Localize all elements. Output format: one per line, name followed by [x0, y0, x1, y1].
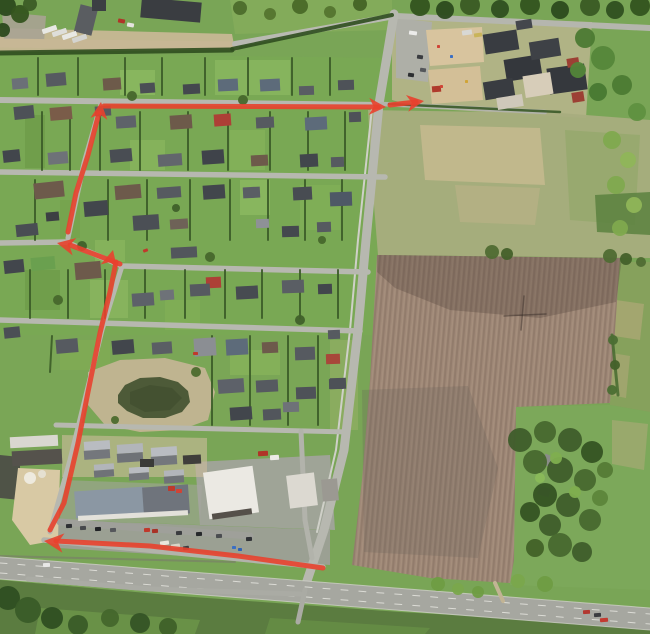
- building-roof: [151, 446, 178, 457]
- vehicle: [176, 489, 182, 493]
- vehicle: [216, 534, 222, 538]
- route-top-horizontal: [104, 106, 378, 107]
- building-roof: [183, 84, 201, 95]
- building-roof: [330, 378, 346, 390]
- tree-canopy: [606, 1, 624, 19]
- vehicle: [232, 546, 236, 549]
- building-roof: [170, 114, 193, 130]
- vehicle: [600, 618, 608, 623]
- building-roof: [251, 155, 269, 167]
- tree-canopy: [608, 335, 618, 345]
- tree-canopy: [533, 483, 557, 507]
- tree-canopy: [603, 131, 621, 149]
- vehicle: [583, 610, 590, 614]
- building-roof: [103, 77, 122, 90]
- building-roof: [84, 449, 111, 460]
- vehicle: [408, 73, 414, 78]
- tree-canopy: [550, 452, 562, 464]
- building-roof: [3, 326, 20, 339]
- vehicle: [196, 532, 202, 536]
- building-roof: [160, 290, 175, 301]
- tree-canopy: [318, 236, 326, 244]
- building-roof: [158, 153, 183, 167]
- tree-canopy: [537, 576, 553, 592]
- aerial-map: [0, 0, 650, 634]
- tree-canopy: [295, 315, 305, 325]
- tree-canopy: [53, 295, 63, 305]
- vehicle: [246, 537, 252, 541]
- farm-gravel-track: [0, 43, 235, 46]
- building-roof: [74, 261, 101, 280]
- building-roof: [3, 259, 24, 274]
- building-roof: [256, 219, 269, 228]
- vehicle: [152, 529, 158, 533]
- tree-canopy: [324, 6, 336, 18]
- tree-canopy: [172, 204, 180, 212]
- rough-field-tan-patch: [455, 185, 540, 225]
- building-roof: [286, 472, 318, 508]
- vehicle: [193, 352, 198, 355]
- tree-canopy: [491, 0, 509, 18]
- building-roof: [46, 211, 60, 221]
- vehicle: [95, 527, 101, 531]
- tree-canopy: [612, 75, 632, 95]
- tree-canopy: [431, 577, 445, 591]
- building-roof: [48, 151, 69, 165]
- building-roof: [282, 226, 299, 238]
- tree-canopy: [436, 1, 454, 19]
- building-roof: [218, 78, 239, 91]
- tree-canopy: [539, 514, 561, 536]
- building-roof: [151, 455, 178, 466]
- building-roof: [12, 449, 63, 467]
- tree-canopy: [575, 28, 595, 48]
- tree-canopy: [191, 367, 201, 377]
- building-roof: [318, 284, 332, 294]
- vehicle: [440, 85, 443, 88]
- vehicle: [258, 451, 268, 457]
- building-roof: [236, 285, 259, 299]
- tree-canopy: [233, 1, 247, 15]
- building-roof: [349, 112, 361, 122]
- vehicle: [420, 68, 426, 73]
- tree-canopy: [636, 257, 646, 267]
- building-roof: [522, 72, 553, 98]
- building-roof: [330, 192, 352, 207]
- east-strip-tan: [614, 300, 644, 340]
- building-roof: [243, 187, 261, 199]
- building-roof: [321, 478, 339, 501]
- tree-canopy: [24, 472, 36, 484]
- tree-canopy: [592, 490, 608, 506]
- tree-canopy: [205, 252, 215, 262]
- building-roof: [202, 149, 225, 165]
- building-roof: [183, 455, 201, 465]
- tree-canopy: [526, 539, 544, 557]
- building-roof: [157, 186, 182, 199]
- building-roof: [49, 106, 72, 121]
- tree-canopy: [127, 91, 137, 101]
- building-roof: [33, 180, 65, 199]
- vehicle: [238, 548, 242, 551]
- vehicle: [66, 524, 72, 528]
- tree-canopy: [628, 103, 646, 121]
- building-roof: [300, 154, 319, 168]
- tree-canopy: [603, 249, 617, 263]
- building-roof: [13, 105, 34, 120]
- building-roof: [164, 475, 184, 483]
- tree-canopy: [620, 253, 632, 265]
- building-roof: [328, 330, 340, 339]
- tree-canopy: [548, 533, 572, 557]
- building-roof: [140, 459, 154, 467]
- tree-canopy: [41, 607, 63, 629]
- tree-canopy: [508, 428, 532, 452]
- building-roof: [293, 187, 313, 201]
- building-roof: [116, 115, 137, 128]
- tree-canopy: [581, 441, 603, 463]
- building-roof: [152, 341, 173, 354]
- vehicle: [270, 455, 279, 460]
- building-roof: [190, 283, 211, 296]
- building-roof: [256, 379, 279, 392]
- building-roof: [111, 339, 134, 355]
- building-roof: [132, 292, 155, 307]
- tree-canopy: [264, 8, 276, 20]
- tree-canopy: [607, 176, 625, 194]
- tree-canopy: [523, 450, 547, 474]
- tree-canopy: [597, 462, 613, 478]
- building-roof: [83, 200, 108, 217]
- building-roof: [260, 78, 281, 91]
- hedge-line: [0, 50, 232, 53]
- building-roof: [12, 77, 29, 89]
- building-roof: [170, 218, 189, 229]
- building-roof: [133, 214, 160, 231]
- building-roof: [305, 116, 328, 130]
- tree-canopy: [551, 1, 569, 19]
- tree-canopy: [610, 360, 620, 370]
- building-roof: [256, 117, 275, 129]
- tree-canopy: [620, 152, 636, 168]
- tree-canopy: [534, 421, 556, 443]
- tree-canopy: [101, 609, 119, 627]
- building-roof: [226, 338, 249, 355]
- building-roof: [432, 86, 441, 93]
- tree-canopy: [589, 83, 607, 101]
- building-roof: [299, 86, 314, 96]
- building-roof: [84, 440, 111, 451]
- building-roof: [55, 338, 78, 354]
- building-roof: [263, 409, 282, 421]
- school-sand-playground: [426, 27, 484, 66]
- building-roof: [230, 406, 253, 421]
- building-roof: [214, 113, 232, 126]
- tree-canopy: [612, 220, 628, 236]
- vehicle: [176, 531, 182, 535]
- building-roof: [317, 222, 331, 232]
- building-roof: [30, 256, 55, 271]
- notch-tan: [612, 420, 648, 470]
- building-roof: [262, 342, 279, 354]
- tree-canopy: [558, 428, 582, 452]
- tree-canopy: [520, 502, 540, 522]
- building-roof: [296, 387, 316, 400]
- vehicle: [80, 526, 86, 530]
- building-roof: [140, 82, 156, 93]
- aerial-photo: [0, 0, 650, 634]
- building-roof: [129, 472, 149, 480]
- building-roof: [92, 0, 106, 11]
- building-roof: [571, 91, 584, 103]
- vehicle: [594, 613, 601, 617]
- tree-canopy: [569, 486, 581, 498]
- school-sand-playground: [428, 66, 483, 104]
- tree-canopy: [511, 574, 525, 588]
- tree-canopy: [570, 62, 586, 78]
- vehicle: [450, 55, 453, 58]
- tree-canopy: [238, 95, 248, 105]
- vehicle: [43, 563, 50, 567]
- vehicle: [110, 528, 116, 532]
- tree-canopy: [572, 542, 592, 562]
- vehicle: [417, 55, 423, 60]
- building-roof: [203, 184, 226, 200]
- tree-canopy: [579, 509, 601, 531]
- tree-canopy: [15, 597, 41, 623]
- tree-canopy: [130, 613, 150, 633]
- tree-canopy: [38, 470, 46, 478]
- vehicle: [144, 528, 150, 532]
- building-roof: [331, 157, 344, 167]
- tree-canopy: [591, 46, 615, 70]
- building-roof: [117, 443, 144, 454]
- tree-canopy: [626, 197, 642, 213]
- school-parking: [396, 18, 432, 82]
- building-roof: [94, 469, 114, 477]
- tree-canopy: [111, 416, 119, 424]
- tree-canopy: [485, 245, 499, 259]
- tree-canopy: [472, 586, 484, 598]
- tree-canopy: [535, 473, 545, 483]
- building-roof: [171, 246, 198, 258]
- building-roof: [2, 149, 20, 163]
- tree-canopy: [501, 248, 513, 260]
- building-roof: [295, 347, 315, 361]
- building-roof: [283, 402, 299, 413]
- building-roof: [114, 184, 141, 200]
- building-roof: [15, 223, 38, 237]
- vehicle: [465, 80, 468, 83]
- tree-canopy: [607, 385, 617, 395]
- vehicle: [168, 486, 175, 491]
- building-roof: [326, 354, 340, 364]
- building-roof: [218, 378, 245, 394]
- rough-field-tan-patch: [420, 125, 545, 185]
- tree-canopy: [452, 583, 464, 595]
- building-roof: [117, 452, 144, 463]
- vehicle: [437, 45, 440, 48]
- building-roof: [338, 80, 354, 91]
- building-roof: [45, 72, 66, 87]
- building-roof: [282, 280, 304, 294]
- building-roof: [109, 148, 132, 163]
